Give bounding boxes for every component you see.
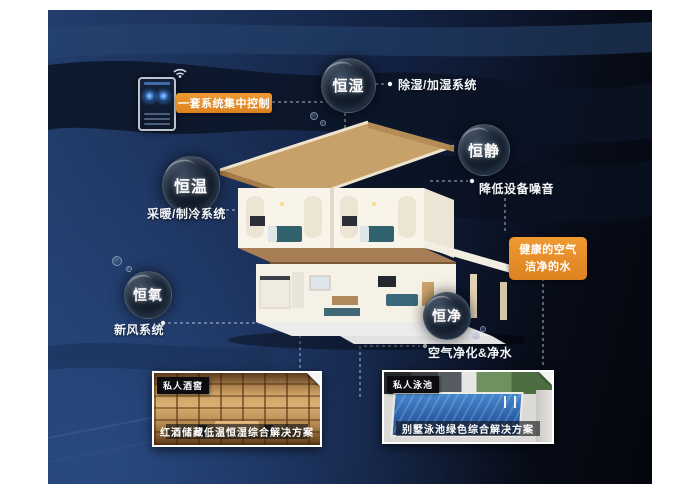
wine-cellar-card: 私人酒窖 红酒储藏低温恒湿综合解决方案: [152, 371, 322, 447]
central-control-label: 一套系统集中控制: [176, 93, 272, 113]
card-caption: 红酒储藏低温恒湿综合解决方案: [166, 424, 309, 439]
bubble-constant-purity: 恒净: [423, 292, 471, 340]
card-tag: 私人泳池: [387, 376, 439, 393]
bubble-label: 恒湿: [332, 75, 364, 96]
label-fresh-air-system: 新风系统: [114, 321, 164, 338]
healthy-air-clean-water-box: 健康的空气 洁净的水: [509, 237, 587, 280]
highlight-line2: 洁净的水: [513, 259, 583, 276]
label-air-water-purification: 空气净化&净水: [428, 344, 512, 361]
phone-screen-row: [144, 123, 170, 125]
decor-bubble: [320, 120, 326, 126]
highlight-line1: 健康的空气: [513, 242, 583, 259]
bubble-label: 恒温: [174, 173, 208, 197]
pool-ladder: [504, 396, 516, 408]
decor-bubble: [480, 326, 486, 332]
card-tag: 私人酒窖: [157, 377, 209, 394]
phone-screen-row: [144, 113, 170, 115]
controller-dial-icon: [144, 91, 155, 102]
label-dehumidification-system: 除湿/加湿系统: [398, 76, 477, 93]
pool-photo: 私人泳池 别墅泳池绿色综合解决方案: [384, 372, 552, 442]
decor-bubble: [472, 332, 480, 340]
label-noise-reduction: 降低设备噪音: [479, 180, 554, 197]
bubble-label: 恒净: [432, 306, 462, 326]
smart-controller-phone: [138, 77, 176, 131]
decor-bubble: [112, 256, 122, 266]
infographic-canvas: { "scene": { "background_color": "#12204…: [0, 0, 700, 497]
bubble-constant-oxygen: 恒氧: [124, 271, 172, 319]
bubble-constant-quiet: 恒静: [458, 124, 510, 176]
wine-cellar-photo: 私人酒窖 红酒储藏低温恒湿综合解决方案: [154, 373, 320, 445]
scene: 一套系统集中控制 恒湿 除湿/加湿系统 恒静 降低设备噪音 恒温 采暖/制冷系统…: [48, 10, 652, 484]
corner-fold: [307, 373, 320, 386]
corner-fold: [539, 372, 552, 385]
phone-screen-row: [144, 118, 170, 120]
controller-dial-icon: [158, 91, 169, 102]
bubble-constant-humidity: 恒湿: [321, 58, 376, 113]
label-heating-cooling-system: 采暖/制冷系统: [147, 205, 226, 222]
card-caption: 别墅泳池绿色综合解决方案: [396, 421, 541, 436]
bubble-label: 恒氧: [133, 285, 163, 305]
phone-screen-header: [144, 82, 170, 85]
pool-card: 私人泳池 别墅泳池绿色综合解决方案: [382, 370, 554, 444]
decor-bubble: [126, 266, 132, 272]
wifi-icon: [172, 64, 188, 78]
decor-bubble: [310, 112, 318, 120]
bubble-label: 恒静: [468, 140, 500, 161]
